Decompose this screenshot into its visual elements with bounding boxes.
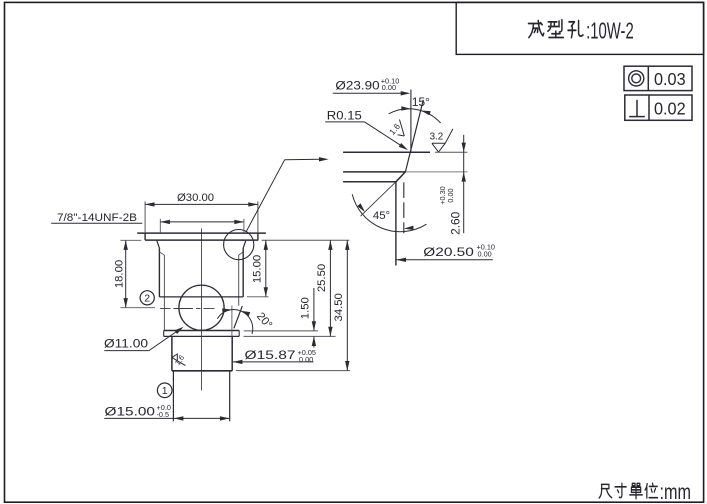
svg-text:7/8"-14UNF-2B: 7/8"-14UNF-2B (57, 212, 137, 224)
svg-text:0.03: 0.03 (654, 69, 686, 89)
svg-text:Ø20.50: Ø20.50 (423, 245, 474, 259)
svg-text:Ø30.00: Ø30.00 (177, 192, 214, 204)
svg-text:15.00: 15.00 (252, 255, 264, 283)
svg-text:Ø15.87: Ø15.87 (245, 348, 296, 362)
svg-text:1.50: 1.50 (300, 297, 312, 319)
svg-text:1.6: 1.6 (387, 121, 402, 137)
svg-text:0.00: 0.00 (446, 188, 455, 202)
svg-text:0.00: 0.00 (299, 355, 313, 364)
svg-text:Ø11.00: Ø11.00 (104, 337, 148, 351)
svg-text:20°: 20° (254, 310, 274, 331)
svg-text:Ø23.90: Ø23.90 (335, 79, 380, 93)
svg-text:0.02: 0.02 (654, 99, 686, 119)
svg-text:2.60: 2.60 (448, 211, 462, 235)
svg-text:3.2: 3.2 (430, 131, 444, 142)
svg-text:45°: 45° (373, 210, 390, 222)
svg-text:0.00: 0.00 (478, 250, 492, 259)
svg-text:1: 1 (162, 385, 168, 397)
svg-text::mm: :mm (660, 481, 692, 504)
svg-text:-0.5: -0.5 (157, 410, 170, 419)
svg-text::10W-2: :10W-2 (586, 17, 634, 43)
svg-text:2: 2 (144, 293, 150, 305)
svg-text:15°: 15° (412, 95, 430, 109)
svg-text:Ø15.00: Ø15.00 (105, 404, 156, 418)
svg-text:0.00: 0.00 (382, 83, 396, 92)
svg-text:25.50: 25.50 (316, 264, 328, 292)
svg-text:18.00: 18.00 (114, 260, 126, 288)
svg-text:34.50: 34.50 (333, 293, 345, 321)
svg-text:R0.15: R0.15 (327, 108, 362, 122)
